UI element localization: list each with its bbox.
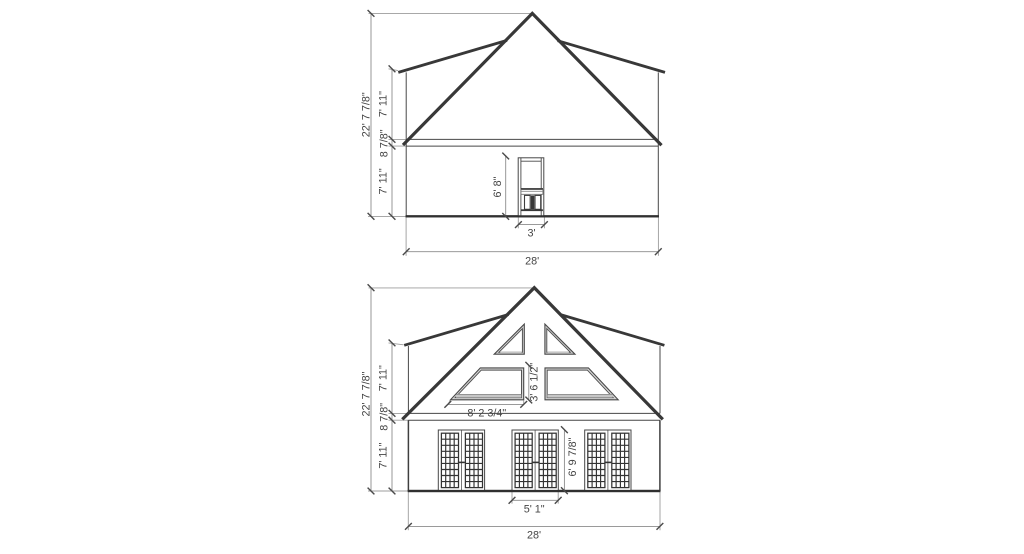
svg-text:22' 7 7/8": 22' 7 7/8" xyxy=(361,92,373,137)
svg-text:22' 7 7/8": 22' 7 7/8" xyxy=(361,371,373,416)
svg-text:8 7/8": 8 7/8" xyxy=(379,129,391,157)
svg-text:3': 3' xyxy=(527,227,535,239)
svg-text:8 7/8": 8 7/8" xyxy=(379,403,391,431)
svg-text:28': 28' xyxy=(525,255,539,267)
svg-text:8' 2 3/4": 8' 2 3/4" xyxy=(467,407,506,419)
svg-text:28': 28' xyxy=(527,529,541,541)
svg-text:7' 11": 7' 11" xyxy=(377,365,389,391)
svg-text:7' 11": 7' 11" xyxy=(377,442,389,468)
svg-text:6' 9 7/8": 6' 9 7/8" xyxy=(567,437,579,476)
svg-text:6' 8": 6' 8" xyxy=(492,176,504,197)
svg-text:7' 11": 7' 11" xyxy=(377,168,389,194)
svg-text:5' 1": 5' 1" xyxy=(524,503,545,515)
svg-text:7' 11": 7' 11" xyxy=(377,91,389,117)
svg-text:3' 6 1/2": 3' 6 1/2" xyxy=(529,363,541,402)
